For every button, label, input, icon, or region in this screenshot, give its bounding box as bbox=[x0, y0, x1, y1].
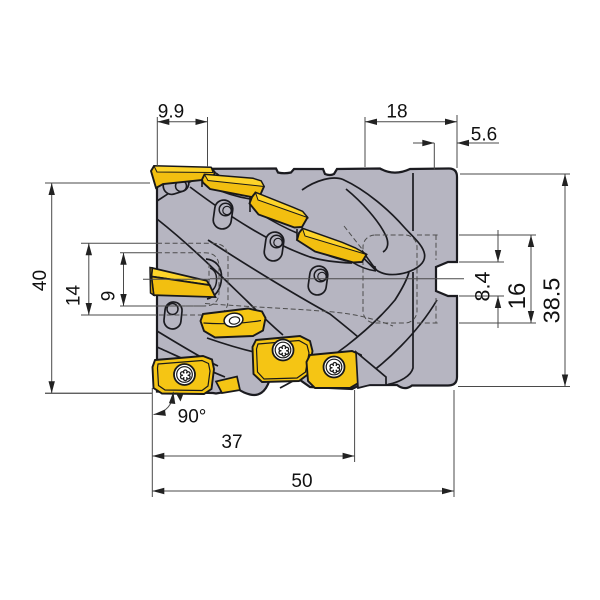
svg-text:37: 37 bbox=[221, 432, 242, 453]
svg-text:38.5: 38.5 bbox=[539, 278, 565, 324]
svg-text:40: 40 bbox=[30, 270, 51, 291]
svg-text:9: 9 bbox=[98, 291, 119, 302]
svg-text:14: 14 bbox=[63, 285, 84, 307]
svg-text:9.9: 9.9 bbox=[158, 102, 184, 123]
svg-text:5.6: 5.6 bbox=[471, 125, 497, 146]
svg-text:90°: 90° bbox=[178, 407, 207, 428]
svg-text:8.4: 8.4 bbox=[471, 272, 495, 302]
svg-text:16: 16 bbox=[504, 283, 531, 310]
svg-text:18: 18 bbox=[386, 102, 407, 123]
svg-text:50: 50 bbox=[291, 471, 312, 492]
